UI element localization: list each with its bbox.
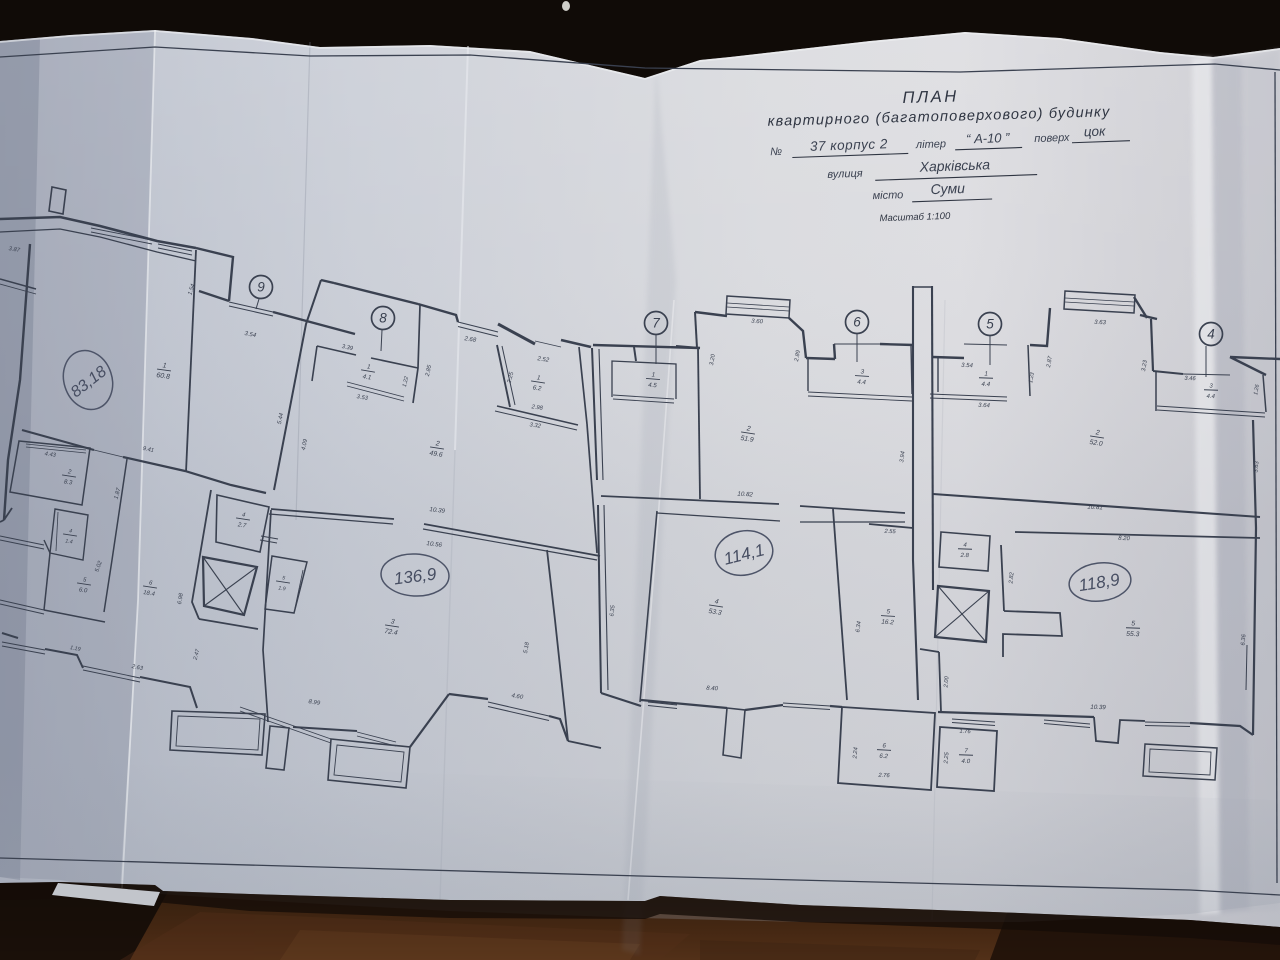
svg-text:1.76: 1.76: [959, 729, 971, 735]
svg-text:1.9: 1.9: [278, 585, 286, 592]
svg-text:6.35: 6.35: [609, 604, 616, 617]
svg-text:1.4: 1.4: [65, 538, 73, 545]
svg-text:“ А-10 ”: “ А-10 ”: [966, 130, 1011, 147]
svg-text:2.82: 2.82: [1008, 571, 1015, 585]
svg-text:2.25: 2.25: [943, 751, 950, 765]
svg-text:поверх: поверх: [1034, 132, 1070, 145]
svg-text:3.63: 3.63: [1094, 320, 1107, 327]
svg-text:вулиця: вулиця: [827, 168, 863, 181]
svg-text:4.1: 4.1: [362, 373, 372, 381]
svg-text:4.5: 4.5: [648, 382, 658, 390]
svg-text:10.39: 10.39: [1090, 704, 1106, 712]
svg-text:2.8: 2.8: [959, 553, 969, 559]
svg-text:55.3: 55.3: [1126, 631, 1140, 638]
svg-text:5: 5: [986, 317, 994, 332]
svg-text:4.0: 4.0: [961, 758, 970, 765]
svg-text:4.4: 4.4: [981, 381, 990, 388]
svg-text:літер: літер: [915, 138, 946, 151]
svg-text:3.63: 3.63: [1254, 460, 1261, 473]
svg-text:6.36: 6.36: [1241, 633, 1248, 646]
svg-text:4.4: 4.4: [857, 379, 867, 387]
svg-text:10.82: 10.82: [737, 490, 753, 498]
svg-text:№: №: [770, 146, 782, 158]
svg-text:4: 4: [1207, 327, 1215, 342]
svg-text:3.54: 3.54: [961, 363, 974, 369]
svg-text:ПЛАН: ПЛАН: [902, 87, 959, 107]
svg-text:місто: місто: [872, 189, 903, 202]
svg-text:Суми: Суми: [930, 180, 965, 197]
svg-text:2.76: 2.76: [877, 773, 890, 779]
svg-text:6.2: 6.2: [532, 384, 542, 392]
svg-text:1: 1: [984, 370, 988, 377]
svg-text:9: 9: [257, 280, 265, 295]
svg-text:5: 5: [1131, 620, 1135, 627]
svg-text:3.46: 3.46: [1184, 376, 1196, 382]
svg-text:2.00: 2.00: [943, 675, 950, 689]
svg-text:16.2: 16.2: [881, 619, 894, 627]
svg-text:37 корпус 2: 37 корпус 2: [810, 136, 888, 154]
svg-text:1: 1: [651, 371, 655, 378]
svg-text:8.40: 8.40: [706, 686, 719, 693]
svg-text:Харківська: Харківська: [918, 156, 990, 174]
svg-text:3.60: 3.60: [751, 319, 764, 326]
svg-text:6: 6: [853, 315, 861, 330]
svg-text:2.24: 2.24: [852, 747, 859, 760]
svg-text:6.2: 6.2: [879, 753, 889, 760]
svg-text:8: 8: [379, 311, 387, 326]
svg-text:7: 7: [652, 316, 660, 331]
svg-text:4.4: 4.4: [1206, 394, 1215, 400]
svg-text:3.64: 3.64: [978, 403, 991, 409]
svg-text:цок: цок: [1084, 124, 1107, 140]
svg-text:8.20: 8.20: [1118, 536, 1131, 542]
svg-text:2.55: 2.55: [883, 529, 896, 536]
svg-text:10.81: 10.81: [1087, 504, 1103, 512]
